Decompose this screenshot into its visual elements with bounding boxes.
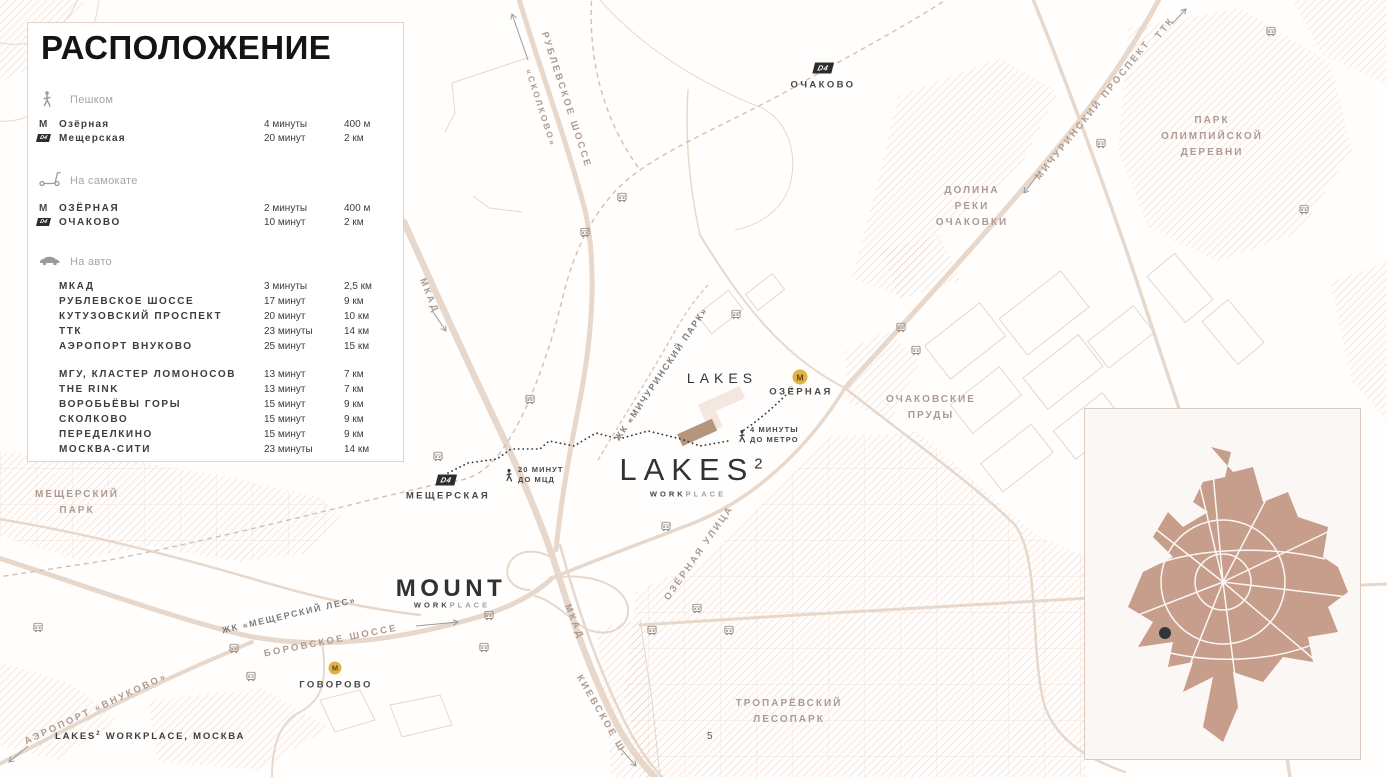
metro-icon: М <box>39 203 47 214</box>
bus-icon <box>691 602 704 615</box>
section-label-car: На авто <box>70 256 112 268</box>
travel-distance: 2 км <box>344 133 364 144</box>
metro-icon: М <box>793 370 808 385</box>
d4-icon: D4 <box>36 134 51 142</box>
lakes2-building <box>677 419 717 446</box>
bus-icon <box>524 393 537 406</box>
walk-icon <box>41 91 53 107</box>
mount-sub-light: PLACE <box>450 601 490 610</box>
bus-icon <box>579 226 592 239</box>
travel-distance: 7 км <box>344 384 364 395</box>
travel-time: 20 минут <box>264 133 305 144</box>
bus-icon <box>660 520 673 533</box>
bus-icon <box>1095 137 1108 150</box>
note-to-metro: 4 МИНУТЫ ДО МЕТРО <box>750 425 799 445</box>
page-title: РАСПОЛОЖЕНИЕ <box>41 29 331 67</box>
place-name: THE RINK <box>59 384 119 395</box>
metro-icon: М <box>39 119 47 130</box>
place-name: МОСКВА-СИТИ <box>59 444 151 455</box>
travel-distance: 14 км <box>344 326 369 337</box>
travel-time: 17 минут <box>264 296 305 307</box>
d4-icon: D4 <box>812 63 833 74</box>
d4-icon: D4 <box>36 218 51 226</box>
area-label-meshchersky-park: МЕЩЕРСКИЙ ПАРК <box>35 487 119 519</box>
mount-logo: MOUNT <box>396 575 506 603</box>
travel-distance: 2 км <box>344 217 364 228</box>
area-line: ПАРК <box>35 503 119 519</box>
travel-time: 15 минут <box>264 429 305 440</box>
travel-time: 3 минуты <box>264 281 307 292</box>
place-name: ОЗЁРНАЯ <box>59 203 119 214</box>
travel-time: 15 минут <box>264 399 305 410</box>
place-name: РУБЛЕВСКОЕ ШОССЕ <box>59 296 194 307</box>
lakes2-sub: WORKPLACE <box>650 490 726 499</box>
area-label-dolina: ДОЛИНА РЕКИ ОЧАКОВКИ <box>936 183 1008 231</box>
area-label-prudy: ОЧАКОВСКИЕ ПРУДЫ <box>886 392 976 424</box>
location-dot <box>1159 627 1171 639</box>
area-label-troparevsky: ТРОПАРЁВСКИЙ ЛЕСОПАРК <box>736 696 843 728</box>
area-line: ДЕРЕВНИ <box>1161 145 1263 161</box>
area-label-olympic-park: ПАРК ОЛИМПИЙСКОЙ ДЕРЕВНИ <box>1161 113 1263 161</box>
bus-icon <box>646 624 659 637</box>
bus-icon <box>723 624 736 637</box>
bus-icon <box>483 609 496 622</box>
place-name: МКАД <box>59 281 95 292</box>
place-name: Мещерская <box>59 133 126 144</box>
travel-time: 4 минуты <box>264 119 307 130</box>
note-to-mcd: 20 МИНУТ ДО МЦД <box>518 465 564 485</box>
footer-rest: WORKPLACE, МОСКВА <box>101 731 245 742</box>
area-line: ЛЕСОПАРК <box>736 712 843 728</box>
scooter-icon <box>38 169 62 187</box>
travel-distance: 7 км <box>344 369 364 380</box>
note-line: ДО МЕТРО <box>750 435 799 445</box>
travel-time: 15 минут <box>264 414 305 425</box>
station-label-ochakovo: ОЧАКОВО <box>791 80 856 91</box>
place-name: ОЧАКОВО <box>59 217 121 228</box>
area-line: ОЛИМПИЙСКОЙ <box>1161 129 1263 145</box>
bus-icon <box>245 670 258 683</box>
place-name: СКОЛКОВО <box>59 414 128 425</box>
footer-address: LAKES2 WORKPLACE, МОСКВА <box>55 731 245 742</box>
bus-icon <box>910 344 923 357</box>
bus-icon <box>478 641 491 654</box>
area-line: ТРОПАРЁВСКИЙ <box>736 696 843 712</box>
moscow-overview-inset <box>1084 408 1361 760</box>
place-name: ВОРОБЬЁВЫ ГОРЫ <box>59 399 181 410</box>
bus-icon <box>1265 25 1278 38</box>
travel-distance: 9 км <box>344 429 364 440</box>
bus-icon <box>616 191 629 204</box>
place-name: ПЕРЕДЕЛКИНО <box>59 429 153 440</box>
lakes2-logo: LAKES2 <box>619 452 764 488</box>
lakes2-sup: 2 <box>754 456 764 473</box>
area-line: ДОЛИНА <box>936 183 1008 199</box>
lakes2-sub-dark: WORK <box>650 490 686 499</box>
bus-icon <box>432 450 445 463</box>
d4-icon: D4 <box>435 475 456 486</box>
area-line: РЕКИ <box>936 199 1008 215</box>
travel-distance: 2,5 км <box>344 281 372 292</box>
note-line: 4 МИНУТЫ <box>750 425 799 435</box>
bus-icon <box>32 621 45 634</box>
page-number: 5 <box>707 731 713 742</box>
lakes-buildings <box>677 386 752 446</box>
station-label-govorovo: ГОВОРОВО <box>299 680 372 691</box>
travel-distance: 9 км <box>344 399 364 410</box>
area-line: ПАРК <box>1161 113 1263 129</box>
area-line: ПРУДЫ <box>886 408 976 424</box>
mount-sub-dark: WORK <box>414 601 450 610</box>
travel-distance: 9 км <box>344 296 364 307</box>
bus-icon <box>895 321 908 334</box>
travel-distance: 10 км <box>344 311 369 322</box>
place-name: ТТК <box>59 326 82 337</box>
section-label-walk: Пешком <box>70 94 113 106</box>
area-line: ОЧАКОВКИ <box>936 215 1008 231</box>
bus-icon <box>228 642 241 655</box>
mount-sub: WORKPLACE <box>414 601 490 610</box>
car-icon <box>38 253 62 267</box>
complex-label-lakes: LAKES <box>687 370 757 386</box>
travel-time: 2 минуты <box>264 203 307 214</box>
lakes2-name: LAKES <box>619 452 754 487</box>
travel-time: 20 минут <box>264 311 305 322</box>
travel-distance: 9 км <box>344 414 364 425</box>
location-map-page: РУБЛЕВСКОЕ ШОССЕ «СКОЛКОВО» МИЧУРИНСКИЙ … <box>0 0 1387 777</box>
travel-distance: 400 м <box>344 119 370 130</box>
section-label-scooter: На самокате <box>70 175 138 187</box>
travel-time: 10 минут <box>264 217 305 228</box>
footer-brand: LAKES <box>55 731 96 742</box>
travel-distance: 14 км <box>344 444 369 455</box>
place-name: Озёрная <box>59 119 109 130</box>
bus-icon <box>730 308 743 321</box>
travel-distance: 400 м <box>344 203 370 214</box>
travel-time: 23 минуты <box>264 326 313 337</box>
note-line: ДО МЦД <box>518 475 564 485</box>
area-line: МЕЩЕРСКИЙ <box>35 487 119 503</box>
travel-time: 23 минуты <box>264 444 313 455</box>
travel-time: 13 минут <box>264 369 305 380</box>
area-line: ОЧАКОВСКИЕ <box>886 392 976 408</box>
travel-time: 25 минут <box>264 341 305 352</box>
place-name: АЭРОПОРТ ВНУКОВО <box>59 341 193 352</box>
travel-time: 13 минут <box>264 384 305 395</box>
travel-distance: 15 км <box>344 341 369 352</box>
station-label-meshcherskaya: МЕЩЕРСКАЯ <box>406 491 490 502</box>
note-line: 20 МИНУТ <box>518 465 564 475</box>
metro-icon: М <box>329 662 342 675</box>
bus-icon <box>1298 203 1311 216</box>
moscow-silhouette <box>1085 409 1360 759</box>
lakes2-sub-light: PLACE <box>686 490 726 499</box>
place-name: КУТУЗОВСКИЙ ПРОСПЕКТ <box>59 311 222 322</box>
place-name: МГУ, КЛАСТЕР ЛОМОНОСОВ <box>59 369 236 380</box>
station-label-ozernaya: ОЗЁРНАЯ <box>769 387 832 398</box>
location-info-panel: РАСПОЛОЖЕНИЕ Пешком М Озёрная 4 минуты 4… <box>27 22 404 462</box>
